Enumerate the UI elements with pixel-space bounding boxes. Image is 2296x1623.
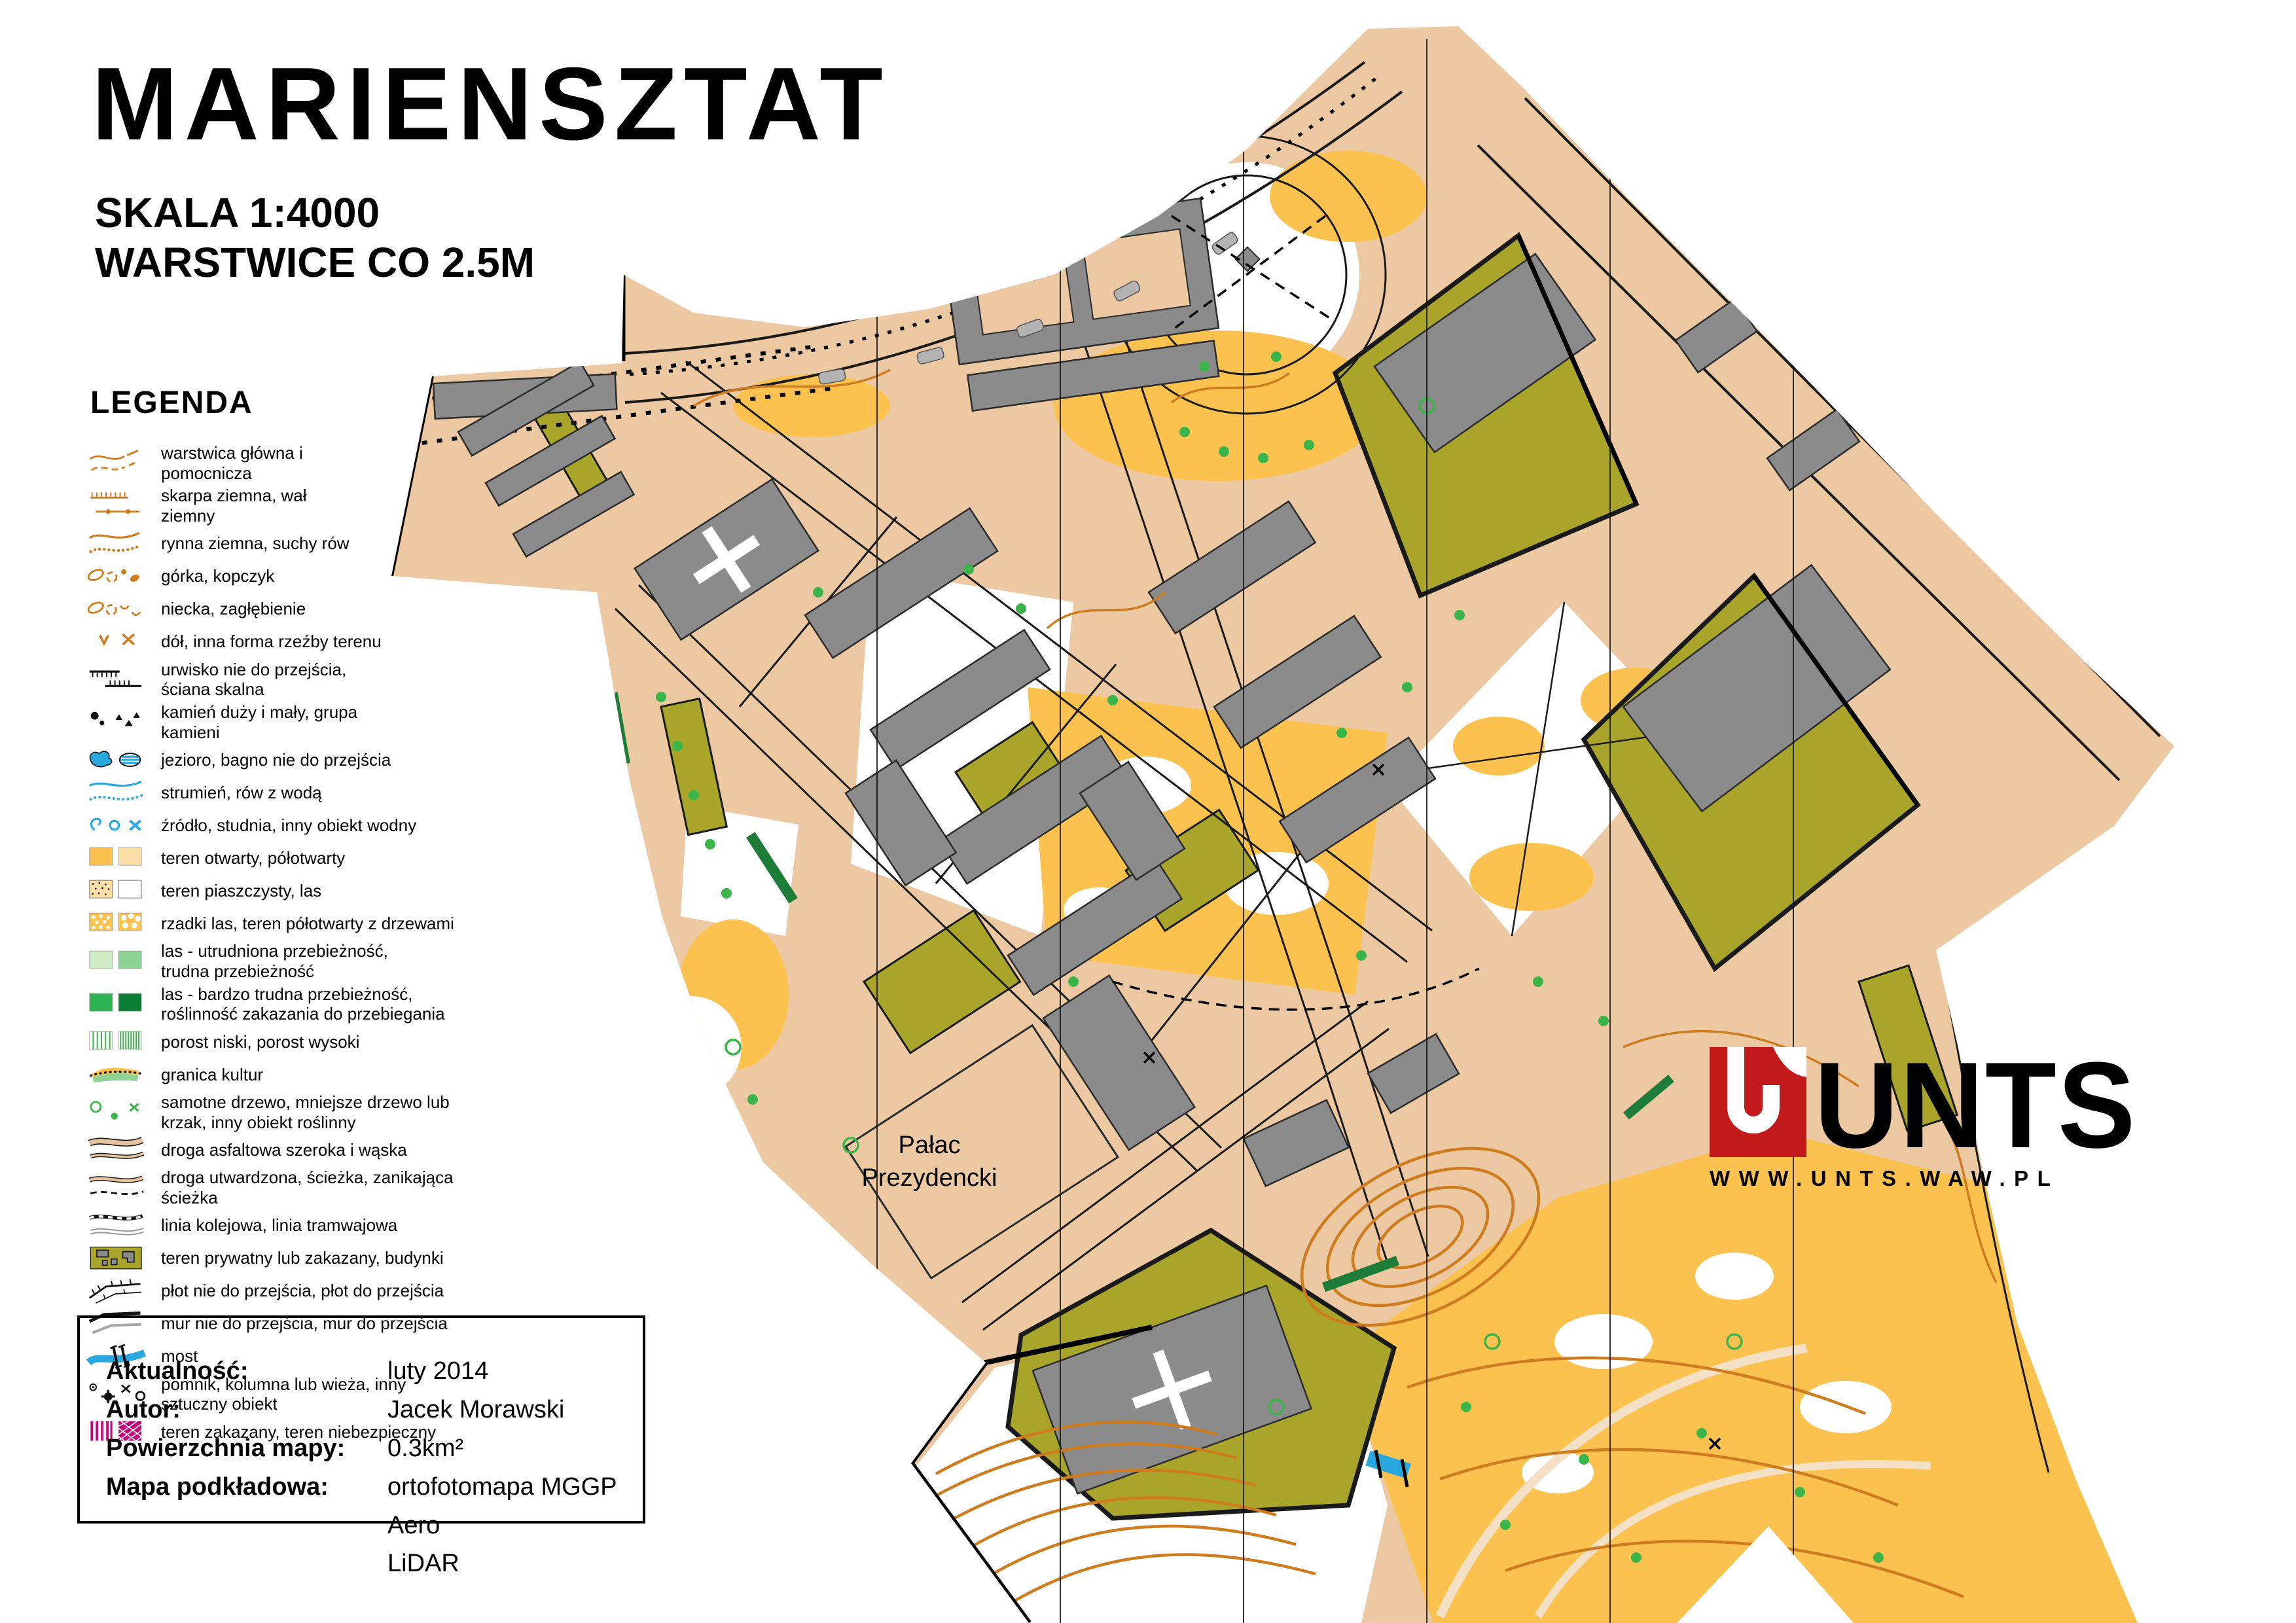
legend-item-label: źródło, studnia, inny obiekt wodny: [161, 815, 416, 836]
legend-item-label: droga asfaltowa szeroka i wąska: [161, 1140, 407, 1160]
logo: UNTS WWW.UNTS.WAW.PL: [1710, 1047, 2168, 1191]
svg-text:Prezydencki: Prezydencki: [862, 1164, 997, 1192]
legend-item: górka, kopczyk: [84, 562, 490, 592]
legend-item: teren prywatny lub zakazany, budynki: [84, 1243, 490, 1274]
erosion-gully-icon: [84, 529, 149, 559]
legend-item-label: niecka, zagłębienie: [161, 599, 306, 619]
legend-item: dół, inna forma rzeźby terenu: [84, 627, 490, 657]
paved-road-icon: [84, 1135, 149, 1165]
boulder-icon: [84, 707, 149, 738]
cliff-icon: [84, 664, 149, 694]
legend-item-label: urwisko nie do przejścia, ściana skalna: [161, 660, 346, 700]
legend-item: źródło, studnia, inny obiekt wodny: [84, 810, 490, 840]
cultivation-boundary-icon: [84, 1060, 149, 1090]
legend-item: las - utrudniona przebieżność, trudna pr…: [84, 941, 490, 981]
path-icon: [84, 1173, 149, 1203]
info-value: 0.3km²: [387, 1429, 643, 1468]
map-scale: SKALA 1:4000: [95, 188, 535, 238]
legend-item: samotne drzewo, mniejsze drzewo lub krza…: [84, 1092, 490, 1132]
legend-item-label: las - utrudniona przebieżność, trudna pr…: [161, 941, 388, 981]
private-area-icon: [84, 1243, 149, 1274]
page-title: MARIENSZTAT: [92, 52, 889, 156]
legend-item: porost niski, porost wysoki: [84, 1027, 490, 1057]
lake-marsh-icon: [84, 745, 149, 775]
legend-heading: LEGENDA: [90, 385, 490, 421]
info-label: Aktualność:: [106, 1352, 387, 1391]
unts-logo-mark-icon: [1710, 1047, 1806, 1157]
legend-item: teren otwarty, półotwarty: [84, 843, 490, 873]
forest-slow-icon: [84, 946, 149, 976]
info-value: ortofotomapa MGGP Aero LiDAR: [387, 1468, 643, 1584]
info-row: Powierzchnia mapy: 0.3km²: [106, 1429, 643, 1468]
legend-item-label: teren otwarty, półotwarty: [161, 848, 345, 868]
knoll-icon: [84, 562, 149, 592]
tree-icon: [84, 1097, 149, 1128]
legend-item-label: teren prywatny lub zakazany, budynki: [161, 1248, 444, 1268]
earth-bank-icon: [84, 491, 149, 521]
legend-item-label: dół, inna forma rzeźby terenu: [161, 632, 382, 652]
fence-icon: [84, 1276, 149, 1306]
svg-text:Pałac: Pałac: [898, 1132, 960, 1159]
legend-item-label: płot nie do przejścia, płot do przejścia: [161, 1281, 444, 1301]
legend-item-label: kamień duży i mały, grupa kamieni: [161, 702, 357, 742]
legend-item: płot nie do przejścia, płot do przejścia: [84, 1276, 490, 1306]
legend-item-label: droga utwardzona, ścieżka, zanikająca śc…: [161, 1168, 454, 1207]
forest-difficult-icon: [84, 989, 149, 1019]
info-box: Aktualność: luty 2014 Autor: Jacek Moraw…: [77, 1315, 645, 1524]
info-label: Mapa podkładowa:: [106, 1468, 387, 1584]
info-value: luty 2014: [387, 1352, 643, 1391]
legend-item: las - bardzo trudna przebieżność, roślin…: [84, 984, 490, 1024]
legend-item: droga asfaltowa szeroka i wąska: [84, 1135, 490, 1165]
open-land-icon: [84, 843, 149, 873]
info-row: Aktualność: luty 2014: [106, 1352, 643, 1391]
legend-item-label: las - bardzo trudna przebieżność, roślin…: [161, 984, 445, 1024]
legend-item: warstwica główna i pomocnicza: [84, 443, 490, 483]
legend-item: rzadki las, teren półotwarty z drzewami: [84, 908, 490, 938]
legend-item-label: samotne drzewo, mniejsze drzewo lub krza…: [161, 1092, 450, 1132]
pit-icon: [84, 627, 149, 657]
water-feature-icon: [84, 810, 149, 840]
legend-item-label: warstwica główna i pomocnicza: [161, 443, 303, 483]
legend-item-label: strumień, rów z wodą: [161, 783, 322, 803]
legend-item-label: górka, kopczyk: [161, 566, 274, 586]
legend: LEGENDA warstwica główna i pomocnicza sk…: [84, 385, 490, 1450]
legend-item: urwisko nie do przejścia, ściana skalna: [84, 660, 490, 700]
legend-item-label: skarpa ziemna, wał ziemny: [161, 486, 307, 526]
legend-item-label: rzadki las, teren półotwarty z drzewami: [161, 914, 454, 934]
railway-icon: [84, 1211, 149, 1241]
legend-item-label: teren piaszczysty, las: [161, 881, 321, 901]
legend-item: jezioro, bagno nie do przejścia: [84, 745, 490, 775]
map-scale-block: SKALA 1:4000 WARSTWICE CO 2.5M: [95, 188, 535, 287]
sandy-forest-icon: [84, 876, 149, 906]
depression-icon: [84, 594, 149, 624]
page: Pałac Prezydencki MARIENSZTAT SKALA 1:40…: [0, 0, 2296, 1623]
undergrowth-icon: [84, 1027, 149, 1057]
legend-item-label: rynna ziemna, suchy rów: [161, 533, 350, 554]
legend-item-label: porost niski, porost wysoki: [161, 1032, 359, 1052]
legend-rows: warstwica główna i pomocnicza skarpa zie…: [84, 443, 490, 1447]
sparse-forest-icon: [84, 908, 149, 938]
map-contour-interval: WARSTWICE CO 2.5M: [95, 238, 535, 288]
stream-icon: [84, 777, 149, 808]
contour-lines-icon: [84, 448, 149, 478]
legend-item: kamień duży i mały, grupa kamieni: [84, 702, 490, 742]
legend-item-label: granica kultur: [161, 1065, 263, 1085]
info-label: Powierzchnia mapy:: [106, 1429, 387, 1468]
logo-word: UNTS: [1814, 1052, 2137, 1159]
info-value: Jacek Morawski: [387, 1391, 643, 1429]
legend-item: rynna ziemna, suchy rów: [84, 529, 490, 559]
legend-item: niecka, zagłębienie: [84, 594, 490, 624]
legend-item: granica kultur: [84, 1060, 490, 1090]
legend-item: linia kolejowa, linia tramwajowa: [84, 1211, 490, 1241]
info-row: Autor: Jacek Morawski: [106, 1391, 643, 1429]
legend-item: teren piaszczysty, las: [84, 876, 490, 906]
legend-item: skarpa ziemna, wał ziemny: [84, 486, 490, 526]
legend-item-label: linia kolejowa, linia tramwajowa: [161, 1215, 397, 1236]
legend-item: strumień, rów z wodą: [84, 777, 490, 808]
info-row: Mapa podkładowa: ortofotomapa MGGP Aero …: [106, 1468, 643, 1584]
info-label: Autor:: [106, 1391, 387, 1429]
legend-item: droga utwardzona, ścieżka, zanikająca śc…: [84, 1168, 490, 1207]
legend-item-label: jezioro, bagno nie do przejścia: [161, 750, 391, 770]
